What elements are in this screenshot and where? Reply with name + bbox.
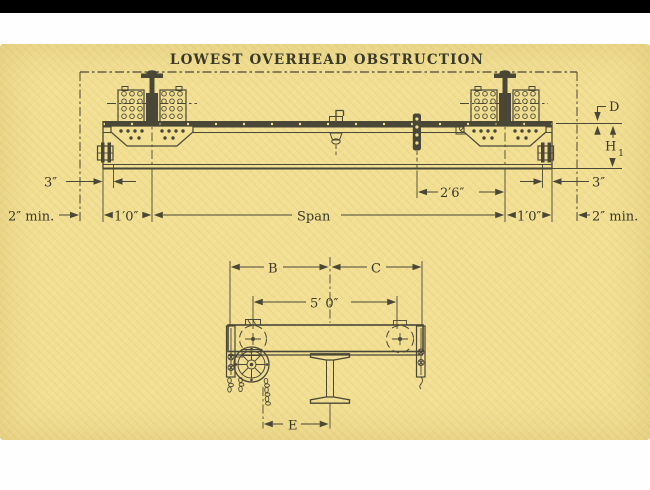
dim-1ft-right-label: 1′0″ xyxy=(517,210,541,225)
dim-span-label: Span xyxy=(297,210,331,225)
dim-2min-right-label: 2″ min. xyxy=(592,210,638,225)
crane-dimension-diagram: LOWEST OVERHEAD OBSTRUCTION xyxy=(0,0,650,490)
dim-2ft6-label: 2′6″ xyxy=(440,186,464,201)
right-end-stop-bracket xyxy=(538,143,554,163)
splice-plate xyxy=(413,114,421,199)
dim-h-subscript: 1 xyxy=(618,148,624,159)
dim-h-label: H xyxy=(605,140,616,155)
beam-cross-section xyxy=(311,354,350,429)
left-end-stop-bracket xyxy=(98,143,114,163)
diagram-title: LOWEST OVERHEAD OBSTRUCTION xyxy=(170,52,484,68)
scanned-catalog-page: LOWEST OVERHEAD OBSTRUCTION xyxy=(0,0,650,490)
truck-wheel-right xyxy=(387,326,414,353)
dim-2min-left-label: 2″ min. xyxy=(8,210,54,225)
end-truck-side-view: B C 5′ 0″ xyxy=(227,257,426,434)
dim-e-label: E xyxy=(288,419,298,434)
hand-chain-wheel xyxy=(234,347,269,382)
dim-2ft6: 2′6″ xyxy=(418,186,504,201)
dim-h1: H 1 xyxy=(552,126,624,169)
dim-c-label: C xyxy=(371,262,381,277)
dim-1ft-left-label: 1′0″ xyxy=(114,210,138,225)
hand-chain xyxy=(239,377,271,428)
hoist-hook-fitting xyxy=(330,111,344,156)
dim-5ft: 5′ 0″ xyxy=(253,296,397,329)
dim-e: E xyxy=(264,419,329,434)
dim-3in-right-label: 3″ xyxy=(592,176,605,191)
top-elevation-view: LOWEST OVERHEAD OBSTRUCTION xyxy=(8,52,638,225)
dim-b-label: B xyxy=(268,262,278,277)
dim-d-label: D xyxy=(609,100,619,115)
dim-3in-left-label: 3″ xyxy=(44,176,57,191)
dim-bottom-row: 2″ min. 1′0″ Span 1′0″ 2″ min. xyxy=(8,210,638,225)
dim-b-c: B C xyxy=(230,257,422,325)
dim-5ft-label: 5′ 0″ xyxy=(310,297,339,312)
